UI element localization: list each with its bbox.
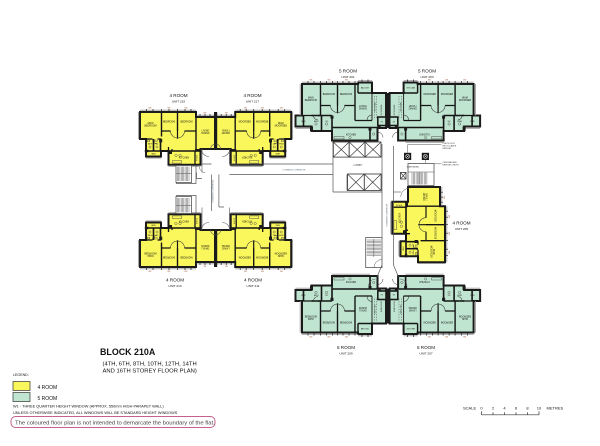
svg-text:UNIT 205: UNIT 205	[455, 227, 468, 231]
svg-text:UNIT 213: UNIT 213	[168, 284, 181, 288]
svg-text:4 ROOM: 4 ROOM	[243, 93, 261, 98]
svg-text:UNIT 203: UNIT 203	[420, 75, 433, 79]
svg-text:UNIT 207: UNIT 207	[419, 352, 432, 356]
svg-text:UNIT 215: UNIT 215	[172, 100, 185, 104]
svg-text:UNIT 211: UNIT 211	[247, 284, 260, 288]
svg-text:REFUSE: REFUSE	[443, 148, 452, 150]
svg-text:The coloured floor plan is not: The coloured floor plan is not intended …	[15, 420, 215, 426]
svg-text:5 ROOM: 5 ROOM	[417, 345, 435, 350]
svg-text:10: 10	[537, 405, 542, 410]
svg-text:CHUTE FOR: CHUTE FOR	[443, 143, 456, 145]
svg-text:BLOCK 210A: BLOCK 210A	[100, 347, 156, 357]
svg-text:4 ROOM: 4 ROOM	[166, 278, 184, 283]
svg-text:5 ROOM: 5 ROOM	[418, 69, 436, 74]
svg-text:UNIT 209: UNIT 209	[339, 352, 352, 356]
svg-text:AND 16TH STOREY FLOOR PLAN): AND 16TH STOREY FLOOR PLAN)	[103, 369, 197, 375]
svg-text:W1 - THREE QUARTER HEIGHT WIND: W1 - THREE QUARTER HEIGHT WINDOW (APPROX…	[13, 405, 164, 409]
svg-text:UNIT 201: UNIT 201	[341, 75, 354, 79]
svg-text:4 ROOM: 4 ROOM	[169, 93, 187, 98]
svg-text:4 ROOM: 4 ROOM	[38, 385, 58, 391]
svg-text:5 ROOM: 5 ROOM	[339, 69, 357, 74]
svg-text:LEGEND:: LEGEND:	[13, 373, 29, 377]
svg-text:4 ROOM: 4 ROOM	[452, 221, 470, 226]
svg-text:COMMON CORRIDOR: COMMON CORRIDOR	[387, 203, 389, 226]
svg-text:5 ROOM: 5 ROOM	[38, 396, 58, 402]
svg-text:WASH AREA: WASH AREA	[407, 166, 419, 169]
svg-text:LOBBY: LOBBY	[354, 163, 363, 167]
svg-text:METRES: METRES	[547, 405, 564, 410]
svg-text:5 ROOM: 5 ROOM	[337, 345, 355, 350]
svg-text:COMMON CORRIDOR: COMMON CORRIDOR	[212, 179, 214, 202]
svg-text:COMMON CORRIDOR: COMMON CORRIDOR	[283, 170, 306, 172]
svg-text:REFUSE CHUTE: REFUSE CHUTE	[443, 165, 460, 167]
svg-text:4 ROOM: 4 ROOM	[244, 278, 262, 283]
svg-text:(4TH, 6TH, 8TH, 10TH, 12TH, 14: (4TH, 6TH, 8TH, 10TH, 12TH, 14TH	[103, 362, 197, 368]
svg-text:RECYCLABLE: RECYCLABLE	[443, 145, 457, 148]
svg-text:UNLESS OTHERWISE INDICATED, AL: UNLESS OTHERWISE INDICATED, ALL WINDOWS …	[13, 411, 178, 415]
svg-text:SCALE: SCALE	[463, 405, 476, 410]
svg-text:CENTRALISED: CENTRALISED	[443, 161, 458, 164]
svg-text:UNIT 217: UNIT 217	[246, 100, 259, 104]
